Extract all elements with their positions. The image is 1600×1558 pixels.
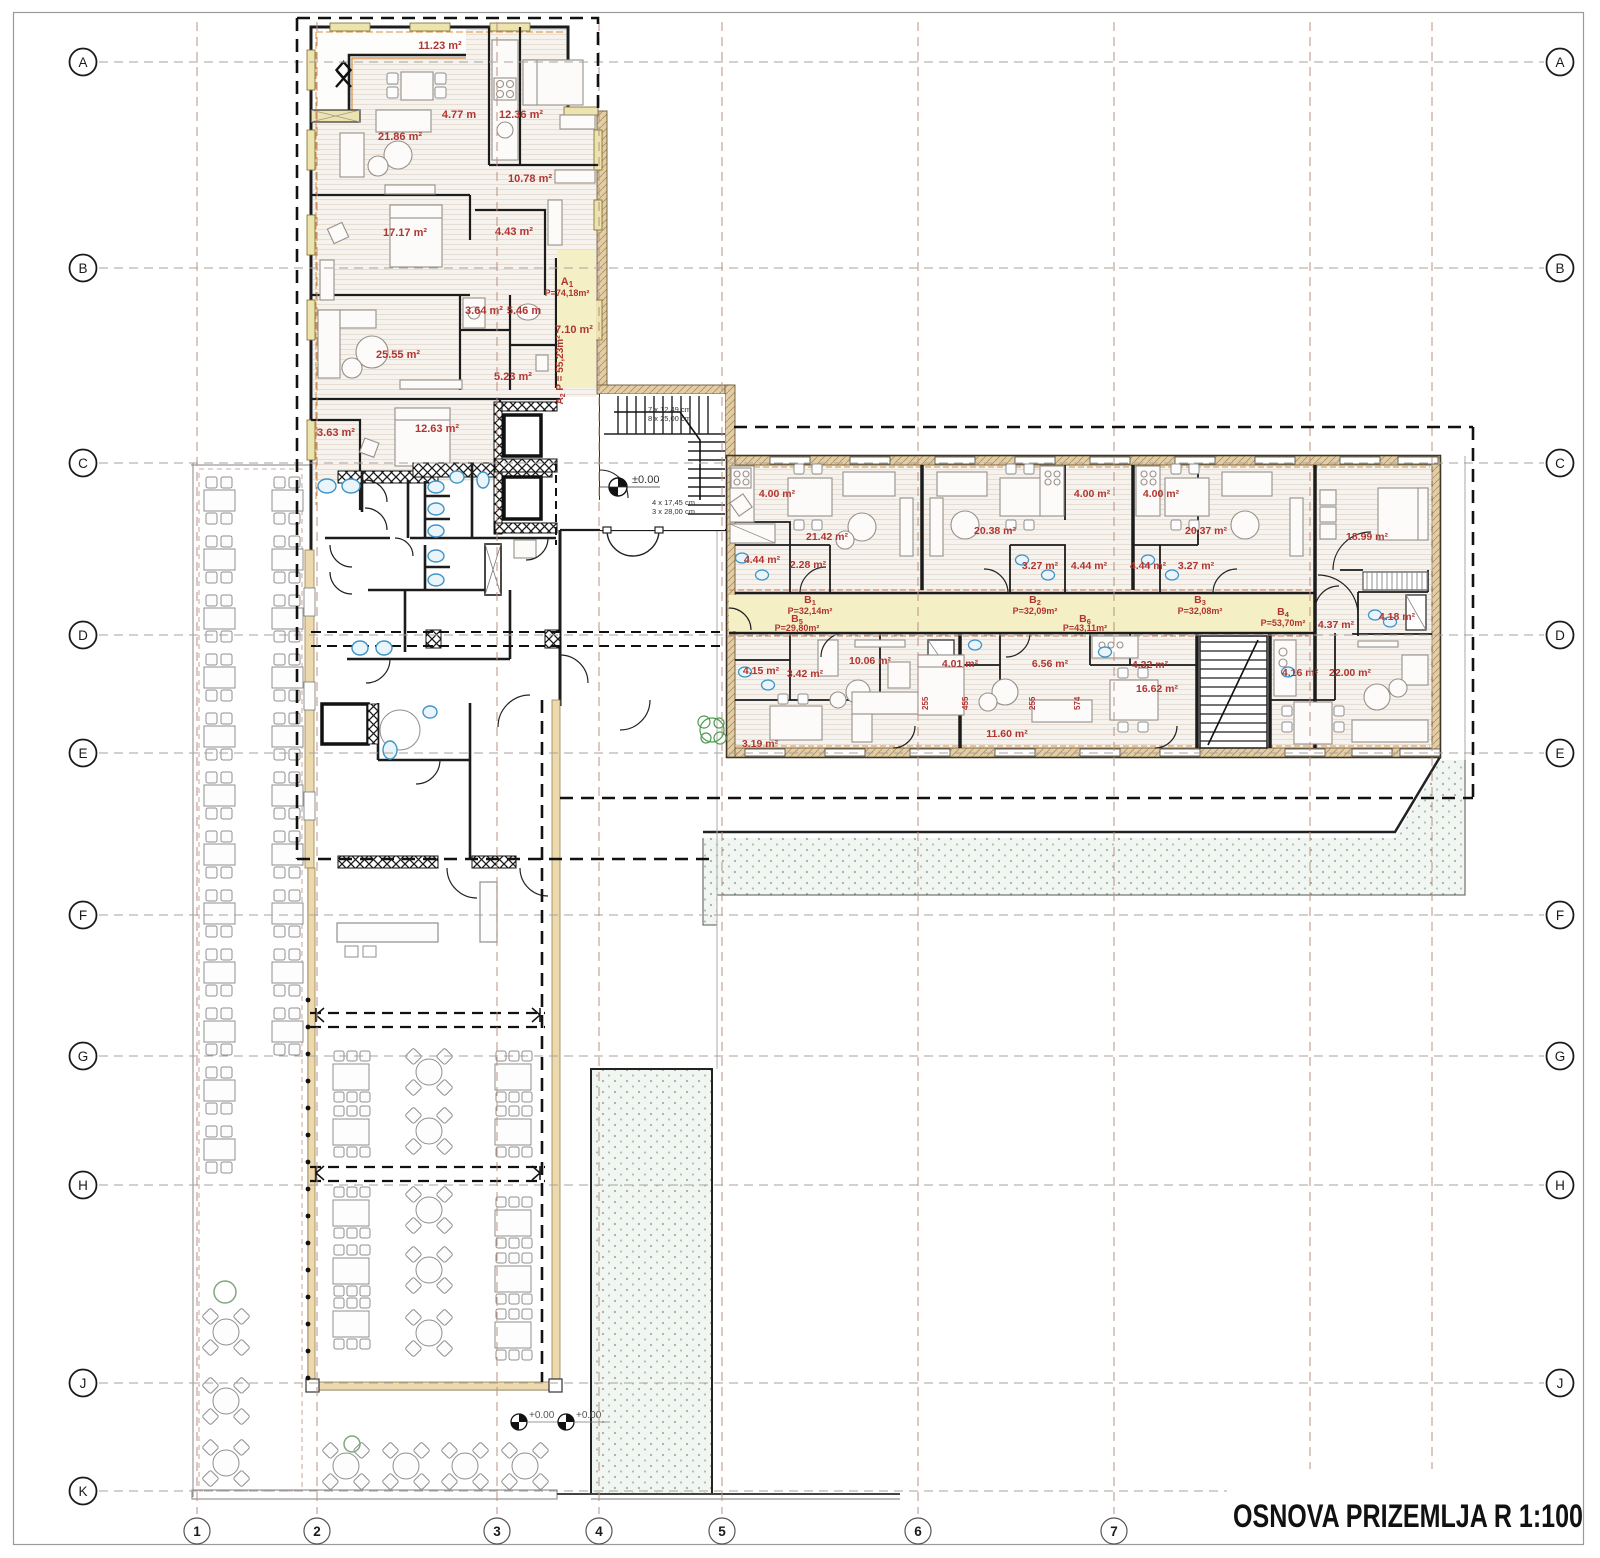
svg-text:6: 6 [914, 1524, 922, 1539]
svg-text:D: D [78, 628, 88, 643]
svg-text:OSNOVA PRIZEMLJA R 1:100: OSNOVA PRIZEMLJA R 1:100 [1233, 1498, 1583, 1534]
svg-text:P=43,11m²: P=43,11m² [1063, 623, 1107, 633]
svg-text:4.43 m²: 4.43 m² [495, 226, 533, 238]
svg-text:5: 5 [718, 1524, 726, 1539]
svg-text:B: B [1555, 261, 1564, 276]
svg-text:11.60 m²: 11.60 m² [986, 728, 1028, 740]
svg-text:255: 255 [1028, 696, 1037, 710]
svg-text:4.00 m²: 4.00 m² [759, 488, 796, 500]
svg-text:21.86 m²: 21.86 m² [378, 131, 422, 143]
svg-text:P=53,70m²: P=53,70m² [1261, 618, 1306, 628]
svg-text:12.63 m²: 12.63 m² [415, 423, 459, 435]
svg-text:J: J [80, 1376, 87, 1391]
svg-text:4: 4 [595, 1524, 603, 1539]
svg-text:B: B [78, 261, 87, 276]
svg-text:P=32,09m²: P=32,09m² [1013, 606, 1058, 616]
svg-text:1: 1 [193, 1524, 201, 1539]
svg-text:255: 255 [921, 696, 930, 710]
svg-text:G: G [1555, 1049, 1566, 1064]
svg-text:20.38 m²: 20.38 m² [974, 525, 1017, 537]
svg-text:12.36 m²: 12.36 m² [499, 109, 543, 121]
svg-text:4.01 m²: 4.01 m² [942, 658, 979, 670]
svg-text:574: 574 [1073, 696, 1082, 710]
svg-text:3.27 m²: 3.27 m² [1022, 560, 1059, 572]
svg-text:H: H [78, 1178, 88, 1193]
svg-text:11.23 m²: 11.23 m² [418, 40, 462, 52]
svg-text:P=29,80m²: P=29,80m² [775, 623, 820, 633]
svg-text:17.17 m²: 17.17 m² [383, 227, 427, 239]
svg-text:3 x 28,00 cm: 3 x 28,00 cm [652, 507, 695, 516]
svg-text:A: A [1555, 55, 1564, 70]
svg-text:2: 2 [313, 1524, 321, 1539]
svg-text:E: E [1555, 746, 1564, 761]
svg-text:4.44 m²: 4.44 m² [1130, 560, 1167, 572]
svg-text:F: F [1556, 908, 1564, 923]
svg-text:+0.00: +0.00 [576, 1410, 602, 1421]
svg-text:E: E [78, 746, 87, 761]
svg-text:10.78 m²: 10.78 m² [508, 173, 552, 185]
svg-text:4.16 m²: 4.16 m² [1282, 667, 1319, 679]
svg-text:8 x 25,00 cm: 8 x 25,00 cm [648, 414, 691, 423]
svg-text:F: F [79, 908, 87, 923]
svg-text:7: 7 [1110, 1524, 1118, 1539]
svg-text:21.42 m²: 21.42 m² [806, 531, 849, 543]
svg-text:D: D [1555, 628, 1565, 643]
svg-text:C: C [78, 456, 88, 471]
svg-text:C: C [1555, 456, 1565, 471]
svg-text:5.23 m²: 5.23 m² [494, 371, 532, 383]
svg-text:4.18 m²: 4.18 m² [1379, 611, 1416, 623]
svg-text:18.99 m²: 18.99 m² [1346, 531, 1389, 543]
svg-text:3: 3 [493, 1524, 501, 1539]
svg-text:±0.00: ±0.00 [632, 474, 659, 486]
svg-text:4.15 m²: 4.15 m² [743, 665, 780, 677]
svg-text:4.32 m²: 4.32 m² [1132, 659, 1169, 671]
svg-text:7 x 12,49 cm: 7 x 12,49 cm [648, 405, 691, 414]
svg-text:P=32,08m²: P=32,08m² [1178, 606, 1223, 616]
svg-text:20.37 m²: 20.37 m² [1185, 525, 1228, 537]
svg-text:H: H [1555, 1178, 1565, 1193]
svg-text:4.77 m: 4.77 m [442, 109, 476, 121]
svg-text:4.37 m²: 4.37 m² [1318, 619, 1355, 631]
svg-text:A: A [78, 55, 87, 70]
svg-text:2.28 m²: 2.28 m² [790, 559, 827, 571]
svg-text:25.55 m²: 25.55 m² [376, 349, 420, 361]
svg-text:3.63 m²: 3.63 m² [317, 427, 355, 439]
svg-text:3.19 m²: 3.19 m² [742, 738, 779, 750]
svg-text:6.56 m²: 6.56 m² [1032, 658, 1069, 670]
svg-text:A2 P = 55,23m²: A2 P = 55,23m² [555, 335, 567, 405]
svg-text:7.10 m²: 7.10 m² [555, 324, 593, 336]
svg-text:22.00 m²: 22.00 m² [1329, 667, 1372, 679]
svg-text:3.27 m²: 3.27 m² [1178, 560, 1215, 572]
svg-text:3.64 m²: 3.64 m² [465, 305, 503, 317]
svg-text:J: J [1557, 1376, 1564, 1391]
svg-text:4.44 m²: 4.44 m² [744, 554, 781, 566]
svg-text:4.00 m²: 4.00 m² [1143, 488, 1180, 500]
svg-text:3.42 m²: 3.42 m² [787, 668, 824, 680]
svg-text:G: G [78, 1049, 89, 1064]
svg-text:16.62 m²: 16.62 m² [1136, 683, 1179, 695]
svg-text:+0.00: +0.00 [529, 1410, 555, 1421]
svg-text:4.00 m²: 4.00 m² [1074, 488, 1111, 500]
svg-text:455: 455 [961, 696, 970, 710]
svg-text:P=74,18m²: P=74,18m² [545, 288, 590, 298]
svg-text:K: K [78, 1484, 87, 1499]
svg-text:10.06 m²: 10.06 m² [849, 655, 892, 667]
svg-text:4.44 m²: 4.44 m² [1071, 560, 1108, 572]
svg-text:4 x 17,45 cm: 4 x 17,45 cm [652, 498, 695, 507]
svg-text:5.46 m: 5.46 m [507, 305, 541, 317]
